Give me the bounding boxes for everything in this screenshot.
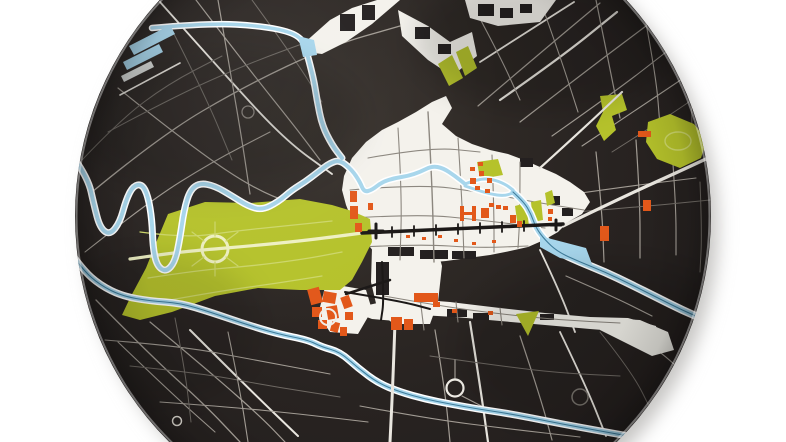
map-plate-svg: [0, 0, 786, 442]
plate-vignette: [75, 0, 711, 442]
product-photo: [0, 0, 786, 442]
map-layers: [5, 0, 760, 442]
finish-layer: [5, 0, 760, 442]
